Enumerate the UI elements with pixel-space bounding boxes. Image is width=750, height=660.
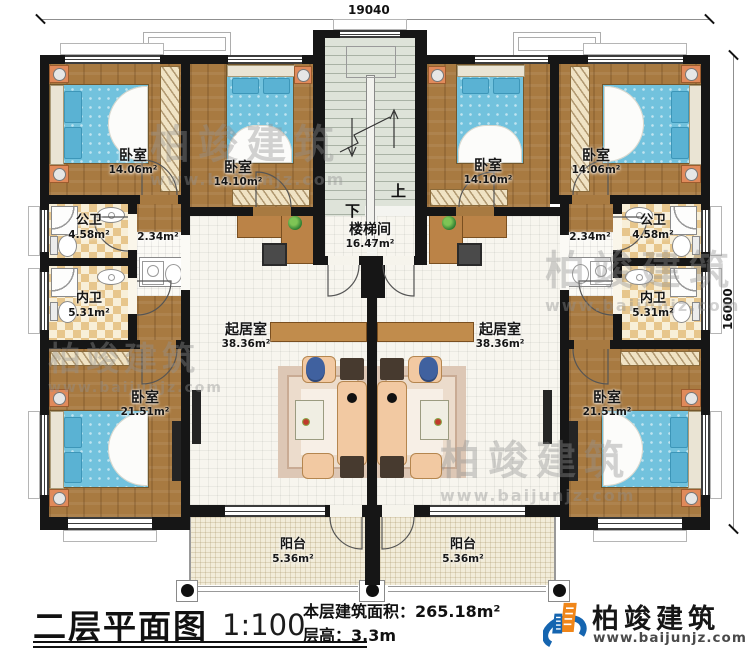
room-label-stairwell: 楼梯间 16.47m² <box>325 222 415 250</box>
room-area: 14.10m² <box>432 174 544 186</box>
room-name: 内卫 <box>52 292 126 307</box>
title-underline <box>33 646 367 648</box>
room-area: 4.58m² <box>52 229 126 241</box>
room-label-bedroom-tr1: 卧室 14.10m² <box>432 158 544 186</box>
door-swing-overlay <box>0 0 750 660</box>
room-label-hall-left: 2.34m² <box>135 231 181 243</box>
room-label-bath-public-right: 公卫 4.58m² <box>616 214 690 241</box>
room-name: 卧室 <box>552 390 662 406</box>
room-name: 内卫 <box>616 292 690 307</box>
floor-area-text: 本层建筑面积：265.18m² <box>303 598 500 622</box>
room-label-balcony-left: 阳台 5.36m² <box>250 538 336 565</box>
room-name: 阳台 <box>250 538 336 553</box>
room-name: 卧室 <box>432 158 544 174</box>
room-name: 公卫 <box>52 214 126 229</box>
room-area: 16.47m² <box>325 238 415 250</box>
room-area: 2.34m² <box>567 231 613 243</box>
room-name: 起居室 <box>450 322 550 338</box>
room-label-living-left: 起居室 38.36m² <box>196 322 296 350</box>
room-label-bedroom-tl1: 卧室 14.06m² <box>75 148 191 176</box>
room-name: 卧室 <box>182 160 294 176</box>
room-name: 楼梯间 <box>325 222 415 238</box>
room-area: 5.36m² <box>420 553 506 565</box>
room-label-bedroom-tr2: 卧室 14.06m² <box>538 148 654 176</box>
room-name: 卧室 <box>75 148 191 164</box>
room-area: 4.58m² <box>616 229 690 241</box>
room-area: 14.06m² <box>538 164 654 176</box>
stair-up-label: 上 <box>391 180 406 201</box>
room-name: 公卫 <box>616 214 690 229</box>
room-area: 14.06m² <box>75 164 191 176</box>
room-area: 14.10m² <box>182 176 294 188</box>
floor-plan: 19040 16000 <box>0 0 750 660</box>
room-area: 21.51m² <box>552 406 662 418</box>
floor-height-text: 层高：3.3m <box>303 622 396 646</box>
drawing-scale: 1:100 <box>222 608 306 642</box>
stair-down-label: 下 <box>345 200 360 221</box>
room-label-bedroom-br: 卧室 21.51m² <box>552 390 662 418</box>
room-area: 5.31m² <box>616 307 690 319</box>
room-name: 起居室 <box>196 322 296 338</box>
room-label-bedroom-tl2: 卧室 14.10m² <box>182 160 294 188</box>
room-label-bath-public-left: 公卫 4.58m² <box>52 214 126 241</box>
room-label-balcony-right: 阳台 5.36m² <box>420 538 506 565</box>
brand-url: www.baijunjz.com <box>593 630 747 646</box>
room-name: 阳台 <box>420 538 506 553</box>
room-area: 2.34m² <box>135 231 181 243</box>
room-label-bedroom-bl: 卧室 21.51m² <box>90 390 200 418</box>
brand-logo-icon <box>543 594 589 650</box>
room-area: 5.31m² <box>52 307 126 319</box>
room-name: 卧室 <box>90 390 200 406</box>
room-area: 5.36m² <box>250 553 336 565</box>
room-label-bath-private-left: 内卫 5.31m² <box>52 292 126 319</box>
room-area: 38.36m² <box>196 338 296 350</box>
room-area: 21.51m² <box>90 406 200 418</box>
room-label-hall-right: 2.34m² <box>567 231 613 243</box>
room-label-living-right: 起居室 38.36m² <box>450 322 550 350</box>
room-label-bath-private-right: 内卫 5.31m² <box>616 292 690 319</box>
room-area: 38.36m² <box>450 338 550 350</box>
room-name: 卧室 <box>538 148 654 164</box>
